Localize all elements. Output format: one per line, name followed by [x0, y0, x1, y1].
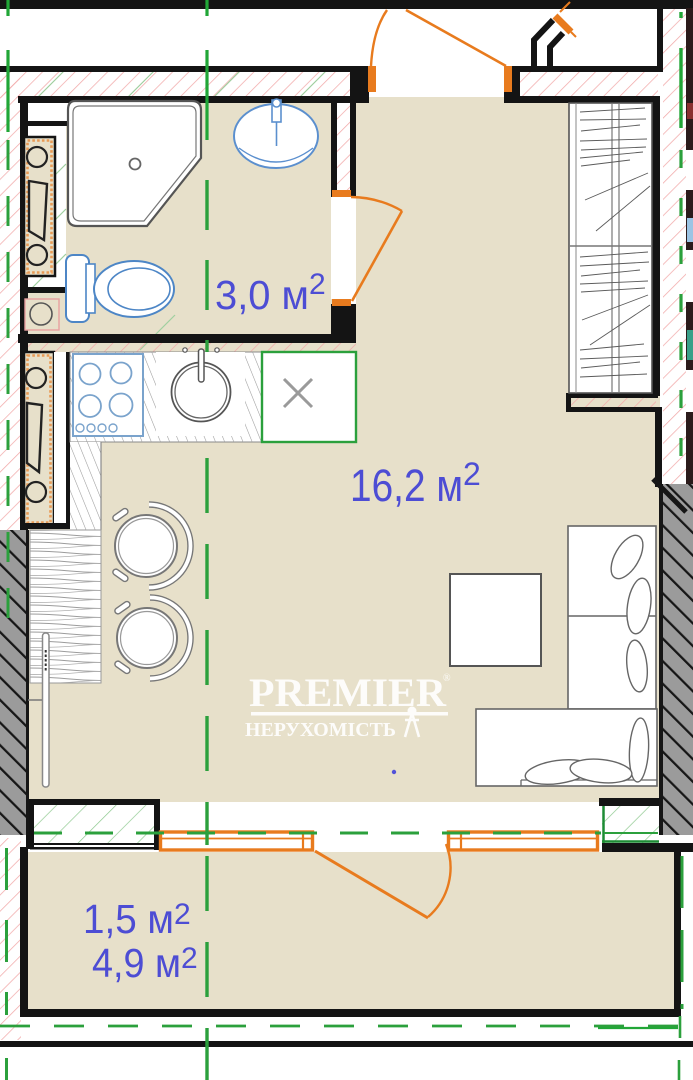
- svg-text:4,9 м: 4,9 м: [92, 940, 181, 986]
- svg-text:1,5 м: 1,5 м: [83, 896, 174, 942]
- svg-text:2: 2: [309, 268, 326, 301]
- svg-text:16,2 м: 16,2 м: [350, 460, 463, 511]
- svg-text:3,0 м: 3,0 м: [215, 272, 309, 318]
- svg-text:НЕРУХОМІСТЬ: НЕРУХОМІСТЬ: [245, 720, 396, 741]
- svg-text:2: 2: [181, 942, 198, 975]
- svg-text:®: ®: [443, 673, 451, 684]
- svg-text:PREMIER: PREMIER: [249, 670, 447, 715]
- svg-text:2: 2: [463, 456, 481, 492]
- svg-text:2: 2: [174, 898, 191, 931]
